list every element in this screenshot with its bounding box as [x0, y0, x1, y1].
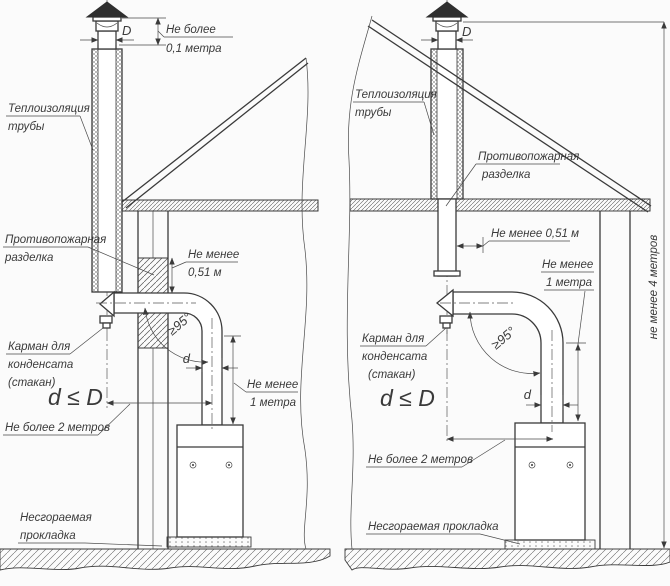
right-chimney: [427, 0, 467, 335]
right-ceiling: [350, 199, 650, 211]
left-label-fire-cut-min: Не менее: [188, 249, 239, 261]
left-house-wall: [138, 211, 168, 549]
svg-text:конденсата: конденсата: [362, 351, 427, 363]
svg-text:трубы: трубы: [8, 121, 45, 133]
right-ground: [345, 549, 670, 570]
right-label-D: D: [462, 24, 471, 39]
right-label-angle: ≥95°: [488, 324, 518, 353]
right-label-fire-cut: Противопожарная: [478, 151, 579, 163]
left-label-max-2m: Не более 2 метров: [5, 422, 110, 434]
right-label-formula: d ≤ D: [380, 385, 435, 411]
right-condensate-pocket: [440, 316, 452, 323]
left-break-line: [301, 58, 308, 549]
right-tee: [437, 290, 453, 328]
svg-text:1 метра: 1 метра: [250, 397, 296, 409]
left-boiler: [167, 425, 251, 547]
left-fire-cut-block-bottom: [138, 313, 168, 348]
left-fire-cut-block-top: [138, 258, 168, 293]
right-label-max-2m: Не более 2 метров: [368, 454, 473, 466]
left-label-min-1m: Не менее: [247, 379, 298, 391]
svg-text:1 метра: 1 метра: [546, 277, 592, 289]
chimney-installation-diagram: D Не более 0,1 метра Не менее 0,51 м ≥95…: [0, 0, 670, 586]
left-label-d: d: [183, 351, 191, 366]
right-storm-collar: [436, 21, 458, 31]
left-insulation-band: [92, 49, 98, 292]
right-label-min-4m: не менее 4 метров: [648, 235, 660, 340]
left-wall-brick-top: [138, 211, 153, 258]
svg-text:0,1 метра: 0,1 метра: [166, 43, 222, 55]
svg-text:(стакан): (стакан): [368, 369, 416, 381]
left-label-pad: Несгораемая: [20, 512, 92, 524]
left-dimensions: D Не более 0,1 метра Не менее 0,51 м ≥95…: [3, 18, 298, 435]
right-chimney-room-pipe: [438, 199, 456, 276]
left-chimney-cap-icon: [87, 2, 127, 17]
left-ground: [0, 549, 330, 570]
left-diagram: D Не более 0,1 метра Не менее 0,51 м ≥95…: [0, 0, 330, 570]
left-wall-brick-bottom: [138, 348, 153, 549]
left-fireproof-pad: [167, 537, 251, 547]
right-label-d: d: [524, 387, 532, 402]
left-label-formula: d ≤ D: [48, 384, 103, 410]
svg-text:разделка: разделка: [4, 252, 53, 264]
right-label-min-1m: Не менее: [542, 259, 593, 271]
svg-text:0,51 м: 0,51 м: [188, 267, 222, 279]
svg-text:конденсата: конденсата: [8, 359, 73, 371]
left-storm-collar: [96, 21, 118, 31]
svg-text:прокладка: прокладка: [20, 530, 76, 542]
left-roof: [122, 58, 308, 211]
right-label-fire-cut-min: Не менее 0,51 м: [491, 228, 579, 240]
right-boiler: [505, 423, 595, 549]
left-ceiling: [122, 200, 318, 211]
right-fireproof-pad: [505, 540, 595, 549]
right-label-condensate: Карман для: [362, 333, 424, 345]
right-label-insulation: Теплоизоляция: [355, 89, 437, 101]
right-insulation-band: [457, 49, 463, 199]
left-label-cap-clearance: Не более: [166, 24, 216, 36]
left-insulation-band: [116, 49, 122, 292]
left-chimney-top-pipe: [98, 31, 116, 49]
svg-text:разделка: разделка: [481, 169, 530, 181]
right-label-pad: Несгораемая прокладка: [368, 521, 499, 533]
left-chimney: [87, 0, 127, 330]
right-diagram: не менее 4 метров D Не менее 0,51 м ≥95°…: [345, 0, 670, 570]
right-house-wall: [600, 211, 630, 549]
left-label-fire-cut: Противопожарная: [5, 234, 106, 246]
left-label-insulation: Теплоизоляция: [8, 103, 90, 115]
technical-drawing-canvas: D Не более 0,1 метра Не менее 0,51 м ≥95…: [0, 0, 670, 586]
left-label-condensate: Карман для: [8, 341, 70, 353]
right-chimney-cap-icon: [427, 2, 467, 17]
left-condensate-pocket: [100, 316, 112, 323]
svg-text:трубы: трубы: [355, 107, 392, 119]
right-roof: [368, 20, 651, 212]
left-label-D: D: [122, 23, 131, 38]
right-flange: [434, 271, 460, 276]
right-flue-pipe: [453, 292, 563, 423]
left-tee: [100, 292, 114, 328]
